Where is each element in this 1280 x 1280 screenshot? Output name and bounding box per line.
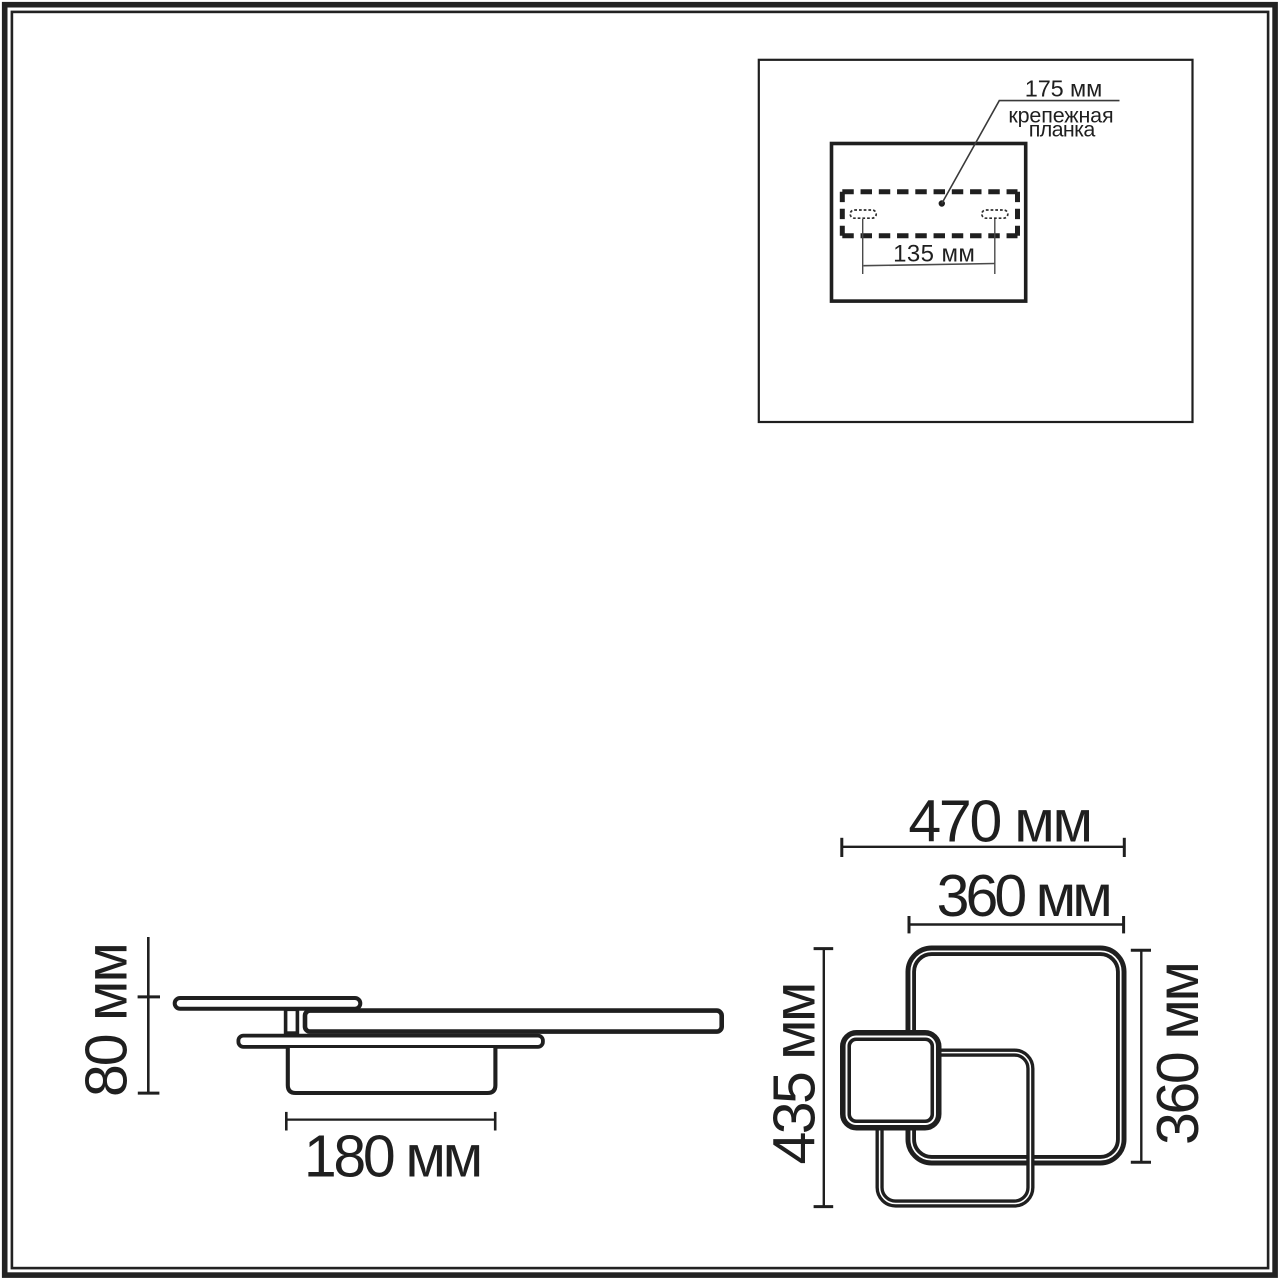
svg-text:360 мм: 360 мм bbox=[937, 863, 1113, 929]
svg-text:180 мм: 180 мм bbox=[304, 1123, 483, 1189]
svg-text:планка: планка bbox=[1029, 117, 1096, 141]
svg-text:80 мм: 80 мм bbox=[74, 942, 140, 1097]
svg-text:360 мм: 360 мм bbox=[1145, 961, 1211, 1145]
svg-text:175 мм: 175 мм bbox=[1025, 76, 1103, 102]
svg-text:435 мм: 435 мм bbox=[762, 982, 828, 1165]
svg-text:135 мм: 135 мм bbox=[893, 241, 975, 268]
svg-text:470 мм: 470 мм bbox=[908, 789, 1093, 855]
